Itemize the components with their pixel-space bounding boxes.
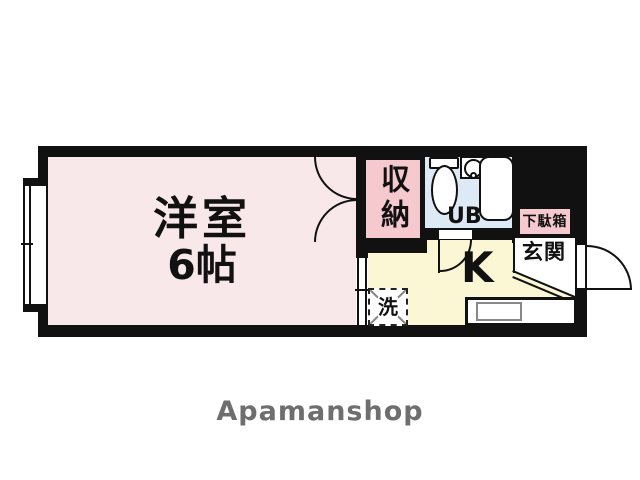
shoe-cabinet-label: 下駄箱	[523, 215, 568, 229]
kitchen-sink-icon	[476, 302, 522, 321]
sliding-door-cap	[356, 253, 368, 258]
partition-wall	[356, 146, 363, 253]
main-room: 洋室 6帖	[48, 157, 356, 325]
entrance-edge-line	[513, 238, 515, 273]
shoe-cabinet: 下駄箱	[517, 206, 573, 237]
bottom-wall	[38, 325, 587, 337]
left-wall-upper	[38, 146, 48, 179]
window-stub-top	[23, 178, 48, 186]
unit-bath: UB	[423, 157, 512, 228]
left-wall-lower	[38, 311, 48, 337]
sliding-door-tick	[355, 289, 368, 291]
unit-bath-label: UB	[447, 206, 482, 228]
entrance-label: 玄関	[522, 242, 566, 263]
washing-machine-space: 洗	[368, 288, 408, 326]
front-door-leaf	[587, 288, 632, 290]
brand-logo: Apamanshop	[0, 396, 640, 427]
bath-door-opening	[438, 229, 473, 240]
main-room-size: 6帖	[167, 245, 237, 286]
closet-label: 収納	[379, 164, 408, 234]
washing-machine-label: 洗	[378, 297, 398, 317]
front-door-arc	[587, 245, 632, 290]
bathtub-icon	[479, 156, 514, 221]
floor-plan: 洋室 6帖 収納 UB 下駄箱	[0, 0, 640, 480]
window-frame-line	[46, 185, 48, 305]
kitchen-counter-icon	[465, 297, 577, 326]
window-icon	[23, 185, 31, 305]
main-room-name: 洋室	[153, 196, 251, 241]
window-latch-tick	[21, 243, 33, 245]
sink-spout-icon	[470, 172, 477, 179]
window-stub-bottom	[23, 304, 48, 312]
closet: 収納	[363, 157, 423, 241]
kitchen-label: K	[461, 247, 494, 289]
front-door-opening	[575, 243, 587, 290]
